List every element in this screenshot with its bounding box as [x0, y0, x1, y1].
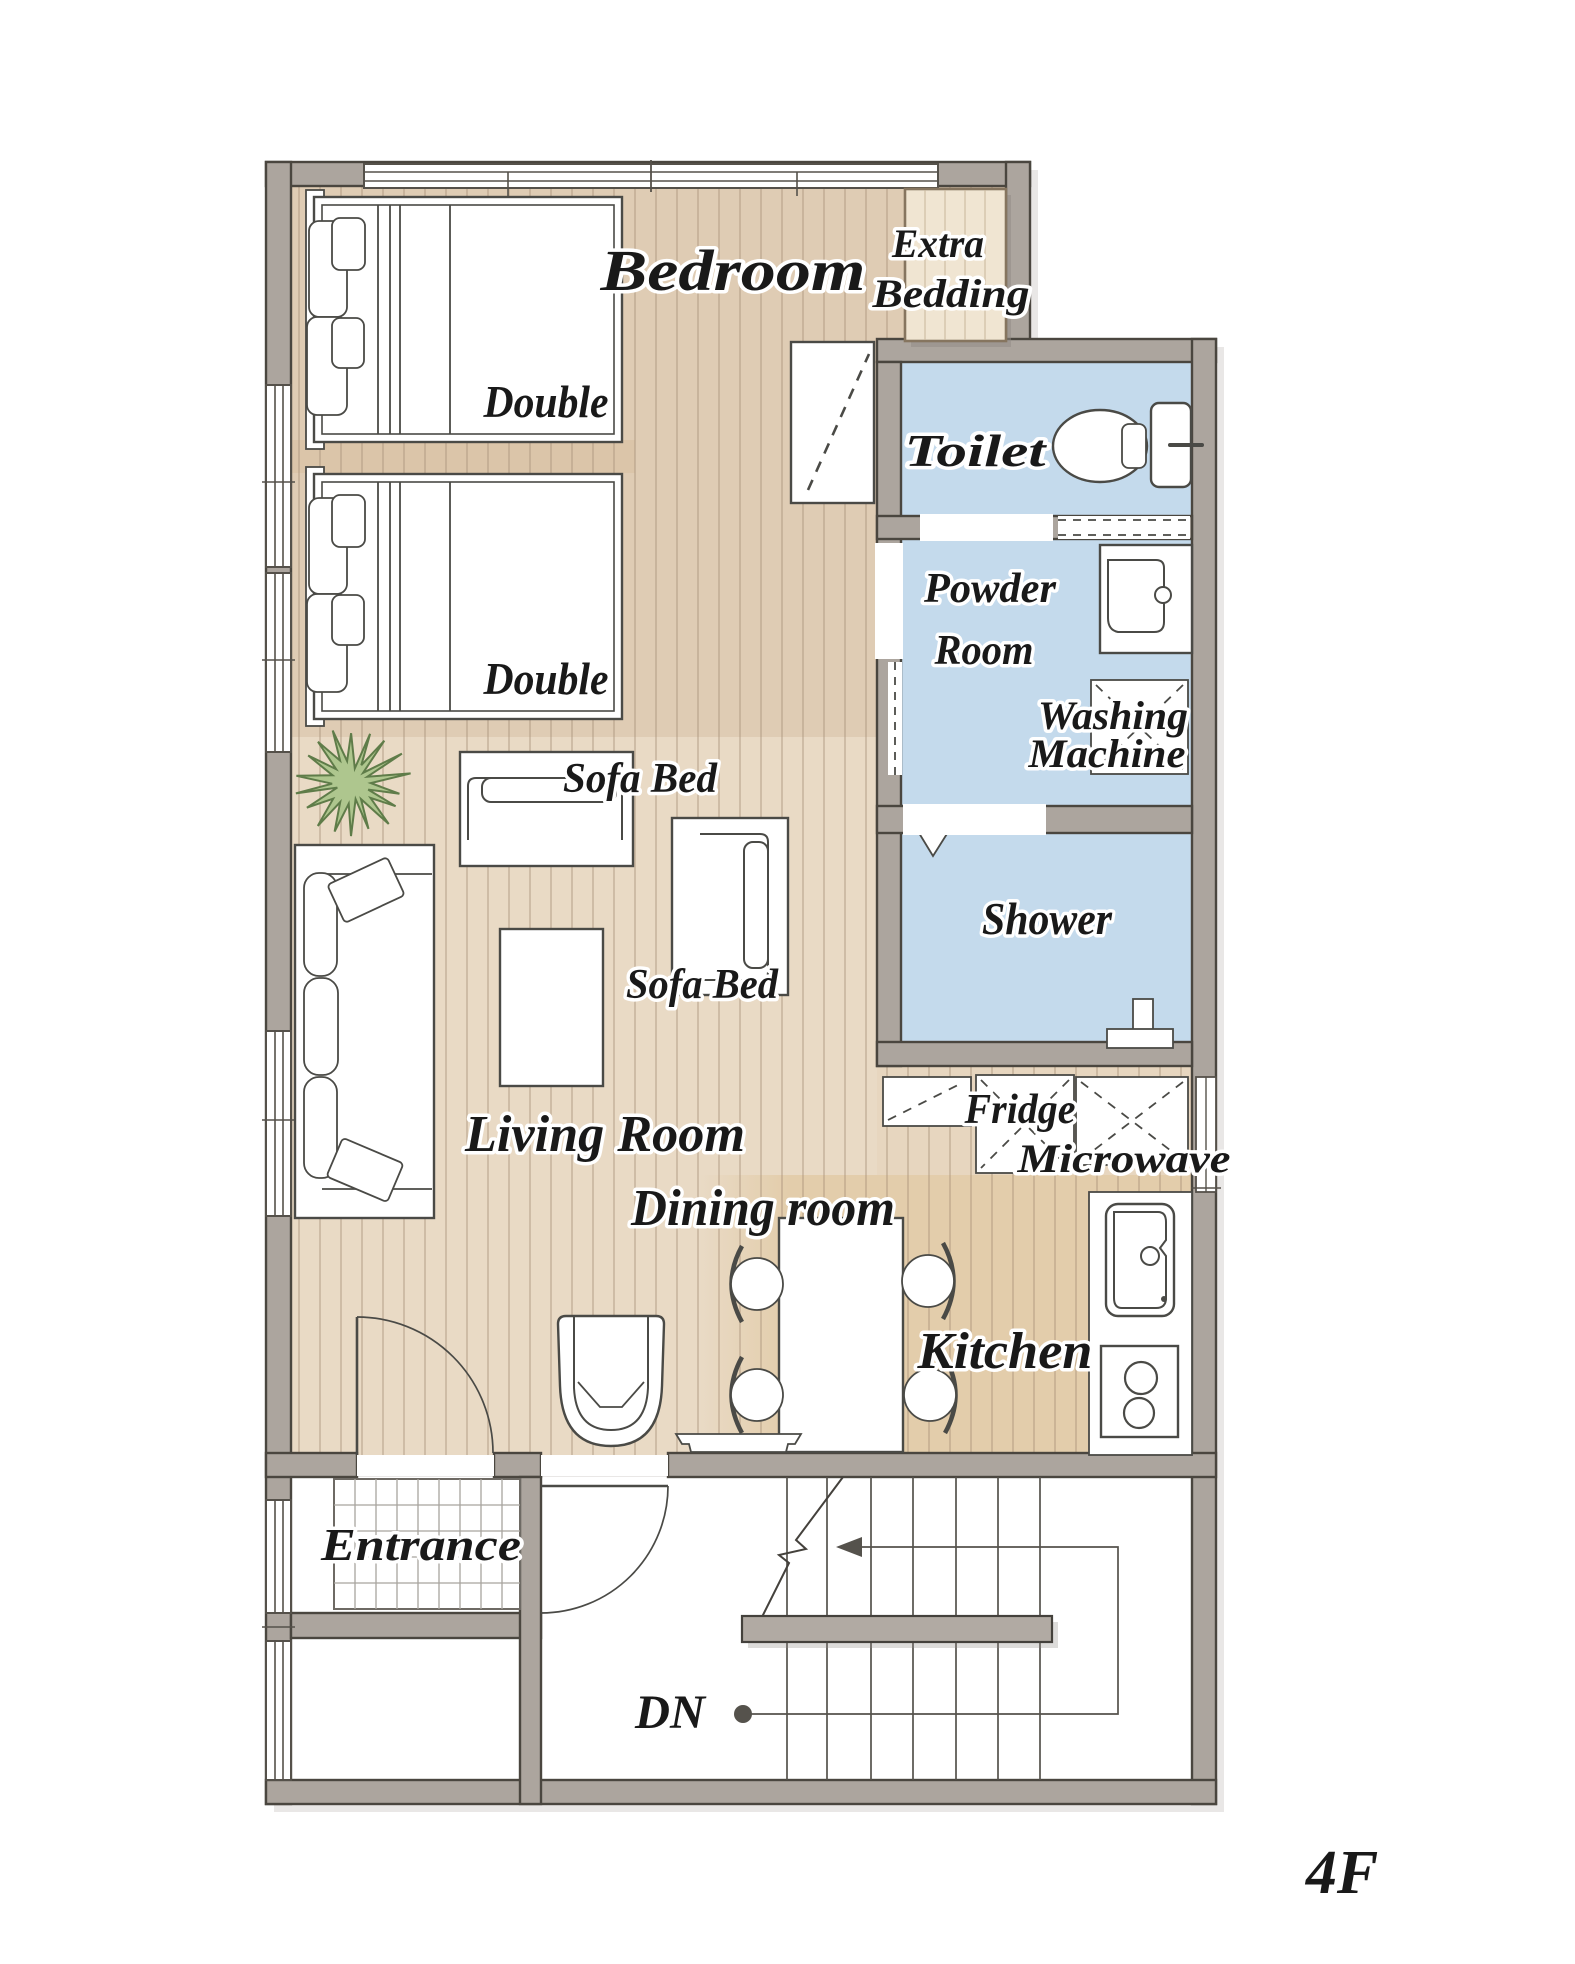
- svg-text:Bedroom: Bedroom: [599, 238, 865, 303]
- svg-text:Toilet: Toilet: [905, 425, 1048, 476]
- svg-text:Extra: Extra: [891, 221, 984, 266]
- svg-text:4F: 4F: [1305, 1839, 1378, 1907]
- svg-text:DN: DN: [634, 1686, 707, 1739]
- svg-text:Kitchen: Kitchen: [916, 1323, 1092, 1380]
- svg-text:Double: Double: [483, 653, 609, 704]
- svg-text:Shower: Shower: [982, 893, 1113, 944]
- svg-text:Machine: Machine: [1027, 731, 1185, 776]
- svg-text:Sofa Bed: Sofa Bed: [563, 756, 718, 802]
- svg-text:Bedding: Bedding: [871, 271, 1029, 316]
- svg-text:Entrance: Entrance: [320, 1519, 521, 1570]
- svg-text:Fridge: Fridge: [964, 1087, 1076, 1133]
- svg-text:Sofa Bed: Sofa Bed: [626, 962, 779, 1008]
- svg-text:Powder: Powder: [923, 566, 1057, 612]
- svg-text:Living Room: Living Room: [464, 1106, 745, 1163]
- svg-text:Dining room: Dining room: [630, 1180, 895, 1237]
- svg-text:Double: Double: [483, 376, 609, 427]
- svg-text:Room: Room: [934, 628, 1034, 674]
- svg-text:Microwave: Microwave: [1016, 1136, 1230, 1181]
